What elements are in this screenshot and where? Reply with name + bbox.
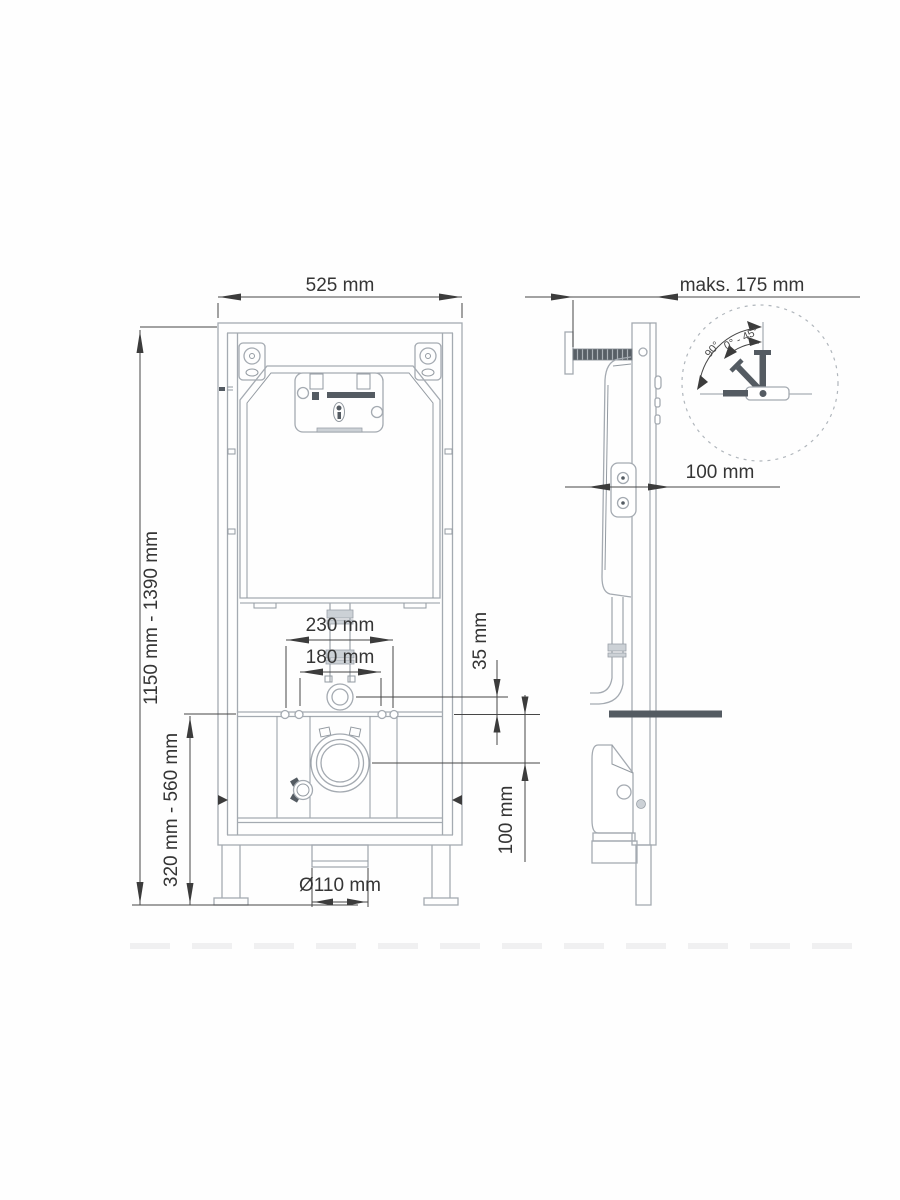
fixing-hole (281, 711, 289, 719)
dim-rod-spacing-outer: 230 mm (306, 615, 375, 636)
fixing-hole (378, 711, 386, 719)
drawing-page: 90° 0° - 45° 525 mm maks. 175 mm 1150 mm… (0, 0, 900, 1200)
detail-angle-range-label: 0° - 45° (722, 325, 760, 352)
clamp-fitting (290, 777, 312, 802)
anchor-angle-detail: 90° 0° - 45° (682, 305, 838, 461)
dim-width-front: 525 mm (306, 275, 375, 296)
clip-left (218, 795, 228, 805)
dimensions: 525 mm maks. 175 mm 1150 mm - 1390 mm 32… (132, 275, 860, 907)
rail-profile (632, 323, 656, 845)
dim-wall-clearance: 100 mm (686, 462, 755, 483)
detail-angle-max-label: 90° (703, 339, 723, 359)
dim-height-range: 1150 mm - 1390 mm (141, 531, 162, 705)
side-bracket (611, 463, 636, 517)
dim-rod-spacing-inner: 180 mm (306, 647, 375, 668)
front-view (214, 323, 462, 905)
technical-drawing: 90° 0° - 45° 525 mm maks. 175 mm 1150 mm… (0, 0, 900, 1200)
frame-mark (219, 387, 233, 391)
fixing-rail (238, 711, 442, 719)
foot-right (424, 845, 458, 905)
dim-depth-max: maks. 175 mm (680, 275, 805, 296)
dim-mount-height-range: 320 mm - 560 mm (161, 733, 182, 887)
dim-drain-diameter: Ø110 mm (299, 875, 381, 896)
flush-connection (327, 684, 353, 710)
drain-elbow-side (592, 745, 646, 863)
bowl-fixing-rods (609, 711, 722, 718)
wall-anchor-rod (565, 332, 647, 374)
rail-bump (655, 376, 661, 389)
service-panel (295, 373, 383, 432)
flush-pipe-side (590, 597, 626, 704)
rod-head (312, 392, 319, 400)
rail-bump (655, 415, 660, 424)
foot-left (214, 845, 248, 905)
fixing-hole (295, 711, 303, 719)
outlet-box (312, 845, 368, 867)
clip-right (452, 795, 462, 805)
dim-drain-offset: 100 mm (496, 786, 517, 855)
side-view (565, 323, 722, 905)
rail-bump (655, 398, 660, 407)
drain-connection-front (311, 727, 369, 792)
wall-plug (746, 387, 789, 400)
dim-flush-pipe-offset: 35 mm (470, 612, 491, 670)
threaded-rod (327, 392, 375, 398)
side-foot (636, 845, 651, 905)
